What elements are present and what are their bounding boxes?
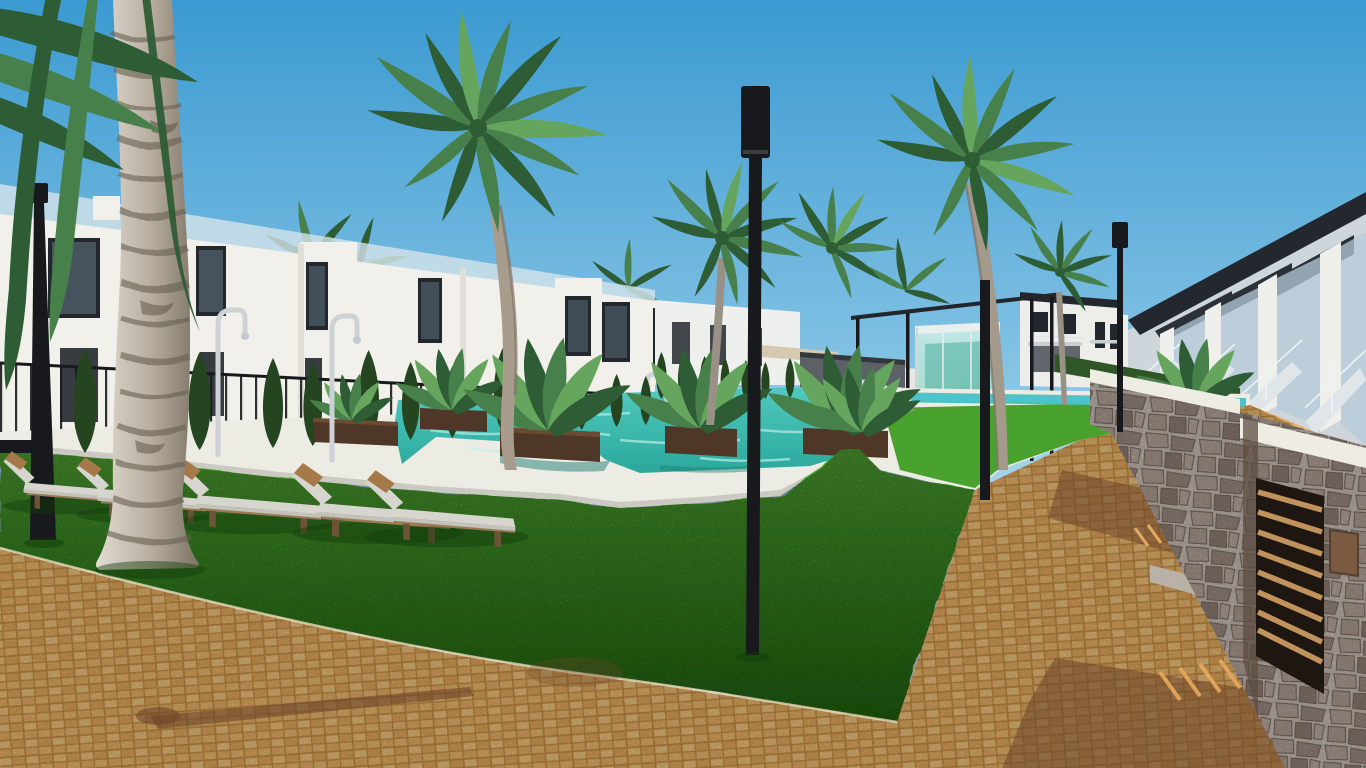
- wall-plaque: [1330, 530, 1358, 576]
- lamp-post-pergola: [980, 280, 990, 500]
- render-image: [0, 0, 1366, 768]
- wooden-gate: [1256, 478, 1324, 694]
- scene-canvas: [0, 0, 1366, 768]
